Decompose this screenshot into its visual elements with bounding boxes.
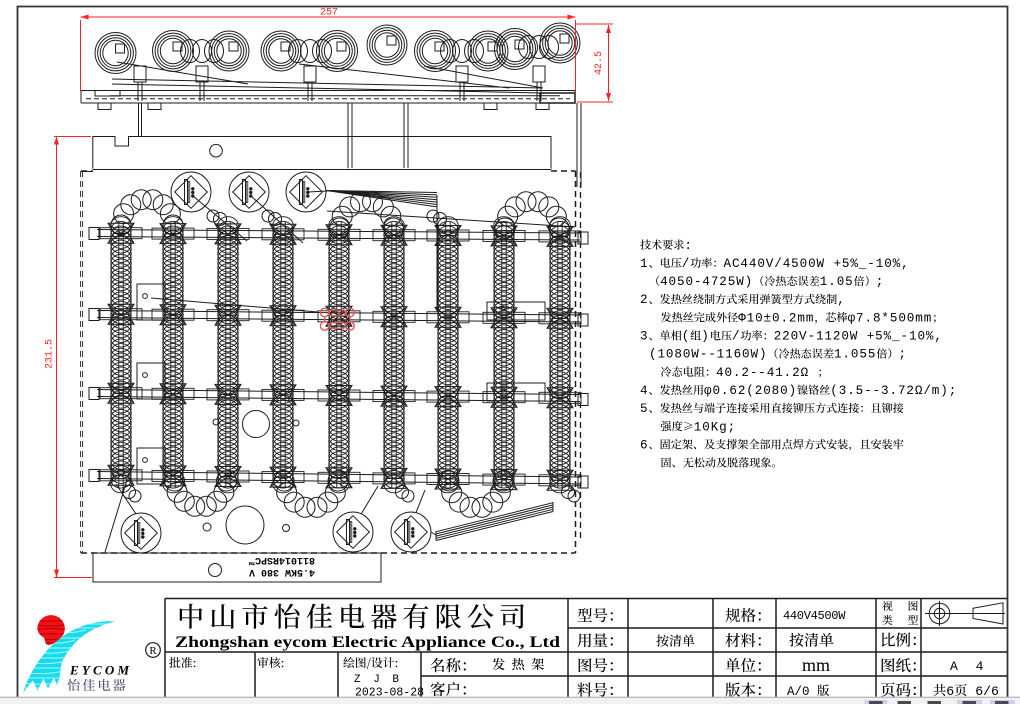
- svg-text:(3.5--3.72Ω/m);: (3.5--3.72Ω/m);: [830, 384, 957, 398]
- svg-text:/: /: [682, 257, 690, 271]
- svg-text:/: /: [732, 330, 740, 344]
- svg-text:Z J B: Z J B: [354, 674, 402, 686]
- svg-text:440V4500W: 440V4500W: [783, 609, 846, 623]
- svg-text:,: ,: [837, 293, 845, 307]
- svg-text:;: ;: [899, 348, 907, 362]
- svg-text:10Kg;: 10Kg;: [694, 420, 736, 434]
- svg-text:220V-1120W +5%_-10%,: 220V-1120W +5%_-10%,: [774, 330, 943, 344]
- svg-text:): ): [701, 330, 709, 344]
- svg-text:4.5KW 380 V: 4.5KW 380 V: [249, 566, 315, 577]
- svg-text:mm: mm: [802, 655, 830, 675]
- svg-text::: :: [684, 239, 692, 253]
- svg-text:;: ;: [876, 275, 884, 289]
- svg-text:φ7.8*500mm: φ7.8*500mm: [848, 311, 933, 325]
- svg-text:4: 4: [640, 384, 648, 398]
- svg-text:42.5: 42.5: [594, 51, 605, 75]
- svg-text:2: 2: [640, 293, 648, 307]
- svg-text:4050-4725W): 4050-4725W): [660, 275, 753, 289]
- svg-text:231.5: 231.5: [45, 339, 56, 369]
- svg-text:811014RSPC™: 811014RSPC™: [249, 554, 315, 566]
- svg-text:R: R: [149, 645, 157, 657]
- svg-text:A 4: A 4: [950, 659, 988, 674]
- svg-text:6: 6: [640, 438, 648, 452]
- svg-text:1: 1: [640, 257, 648, 271]
- svg-text:AC440V/4500W +5%_-10%,: AC440V/4500W +5%_-10%,: [724, 257, 910, 271]
- svg-text:5: 5: [640, 402, 648, 416]
- svg-text:φ0.62(2080): φ0.62(2080): [704, 384, 797, 398]
- svg-text:1.05: 1.05: [820, 275, 854, 289]
- svg-text:1.055: 1.055: [834, 348, 876, 362]
- svg-text:40.2--41.2Ω: 40.2--41.2Ω: [716, 366, 818, 380]
- svg-text:(1080W--1160W): (1080W--1160W): [649, 348, 767, 362]
- svg-text:(: (: [682, 330, 690, 344]
- svg-text:Φ10±0.2mm: Φ10±0.2mm: [738, 311, 814, 325]
- svg-text:3: 3: [640, 330, 648, 344]
- svg-text:257: 257: [320, 8, 338, 19]
- svg-text:EYCOM: EYCOM: [69, 663, 132, 678]
- svg-text:Zhongshan eycom Electric Appli: Zhongshan eycom Electric Appliance Co., …: [175, 634, 560, 651]
